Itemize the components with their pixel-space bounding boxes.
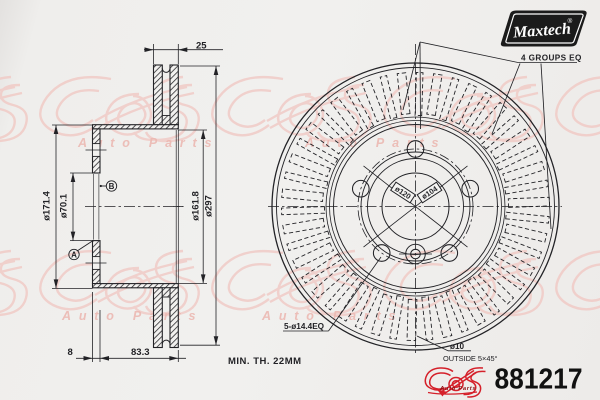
svg-text:ø297: ø297 xyxy=(204,195,215,217)
svg-text:OUTSIDE 5×45°: OUTSIDE 5×45° xyxy=(443,354,498,363)
svg-text:25: 25 xyxy=(196,41,207,52)
svg-text:Auto Parts: Auto Parts xyxy=(304,136,446,150)
svg-text:83.3: 83.3 xyxy=(131,347,150,358)
svg-text:ø10: ø10 xyxy=(450,342,465,351)
svg-text:MIN. TH. 22MM: MIN. TH. 22MM xyxy=(228,356,302,367)
svg-text:881217: 881217 xyxy=(495,364,583,396)
svg-text:8: 8 xyxy=(68,347,73,358)
svg-text:B: B xyxy=(109,182,115,191)
svg-text:ø171.4: ø171.4 xyxy=(42,190,53,220)
svg-text:Auto Parts: Auto Parts xyxy=(61,309,203,323)
svg-text:ø161.8: ø161.8 xyxy=(190,191,201,221)
svg-text:Auto Parts: Auto Parts xyxy=(439,386,476,392)
svg-text:5-ø14.4EQ: 5-ø14.4EQ xyxy=(284,322,325,331)
svg-text:4 GROUPS EQ: 4 GROUPS EQ xyxy=(521,54,582,63)
svg-text:®: ® xyxy=(568,17,573,25)
svg-text:A: A xyxy=(71,251,77,260)
svg-text:Auto Parts: Auto Parts xyxy=(261,309,403,323)
svg-text:ø70.1: ø70.1 xyxy=(59,193,70,218)
